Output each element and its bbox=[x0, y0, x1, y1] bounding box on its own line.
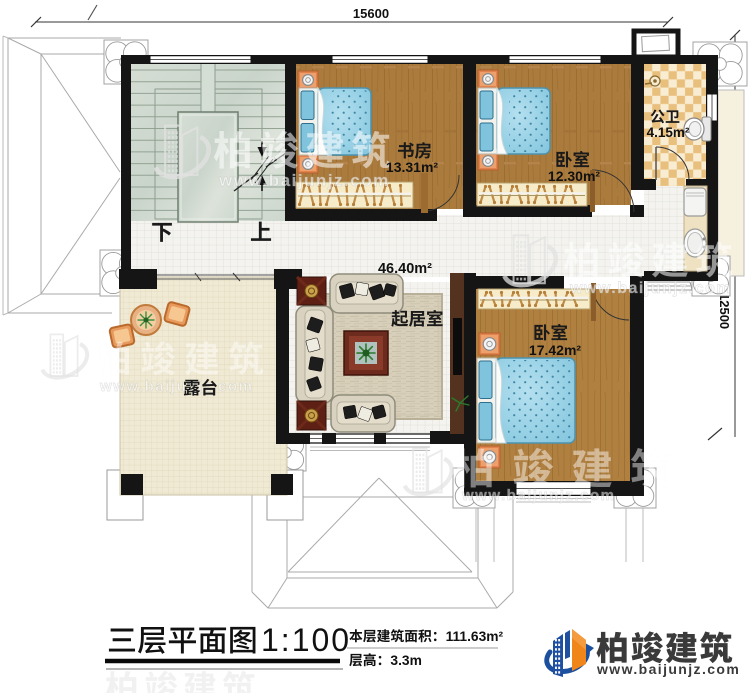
svg-text:12.30m²: 12.30m² bbox=[548, 168, 600, 184]
svg-text:www.baijunjz.com: www.baijunjz.com bbox=[596, 661, 740, 677]
svg-text:46.40m²: 46.40m² bbox=[378, 261, 432, 277]
svg-text:3.3m: 3.3m bbox=[390, 653, 421, 668]
svg-text:13.31m²: 13.31m² bbox=[386, 159, 438, 175]
svg-text:12500: 12500 bbox=[717, 293, 732, 329]
svg-text:17.42m²: 17.42m² bbox=[529, 342, 581, 358]
svg-text:111.63m²: 111.63m² bbox=[446, 629, 504, 644]
svg-text:www.baijunjz.com: www.baijunjz.com bbox=[218, 171, 390, 190]
svg-text:www.baijunjz.com: www.baijunjz.com bbox=[461, 487, 615, 504]
svg-text:www.baijunjz.com: www.baijunjz.com bbox=[99, 378, 253, 395]
svg-text:15600: 15600 bbox=[353, 6, 389, 21]
svg-text:1:100: 1:100 bbox=[261, 622, 351, 658]
svg-text:4.15m²: 4.15m² bbox=[647, 125, 690, 140]
svg-text:www.baijunjz.com: www.baijunjz.com bbox=[569, 280, 732, 297]
